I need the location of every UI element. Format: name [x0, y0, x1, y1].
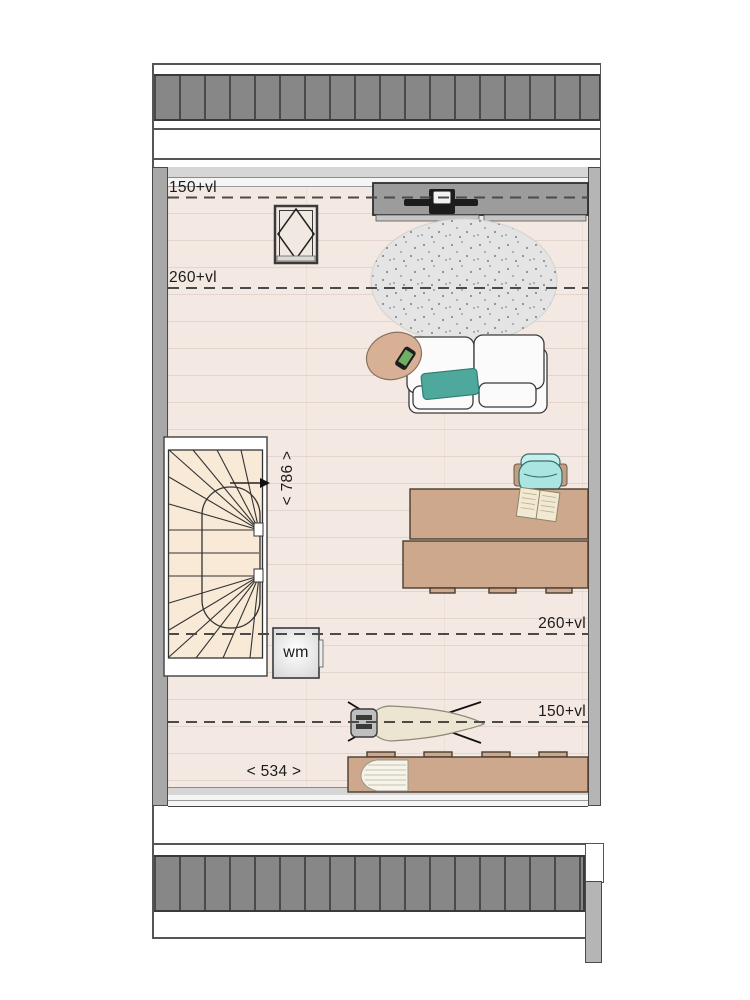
furniture-layer: [0, 0, 750, 1000]
desk: [403, 489, 588, 593]
stair-newel-bottom: [254, 569, 263, 582]
pillow: [421, 368, 479, 400]
floor-plan: 150+vl 260+vl 260+vl 150+vl < 786 > < 53…: [0, 0, 750, 1000]
label-room-width: < 534 >: [238, 764, 310, 780]
sideboard: [348, 752, 588, 792]
roof-window-icon: [275, 206, 317, 263]
wardrobe: [373, 183, 588, 221]
label-260-bottom: 260+vl: [496, 616, 586, 632]
label-260-top: 260+vl: [169, 270, 217, 286]
magazine-icon: [361, 760, 408, 791]
stair-newel-top: [254, 523, 263, 536]
rug: [371, 219, 557, 343]
label-150-top: 150+vl: [169, 180, 217, 196]
label-150-bottom: 150+vl: [496, 704, 586, 720]
label-stair-depth: < 786 >: [280, 433, 300, 523]
label-washing-machine: wm: [273, 628, 319, 678]
open-book-icon: [516, 487, 560, 521]
staircase: [164, 437, 270, 676]
sofa: [407, 335, 547, 413]
